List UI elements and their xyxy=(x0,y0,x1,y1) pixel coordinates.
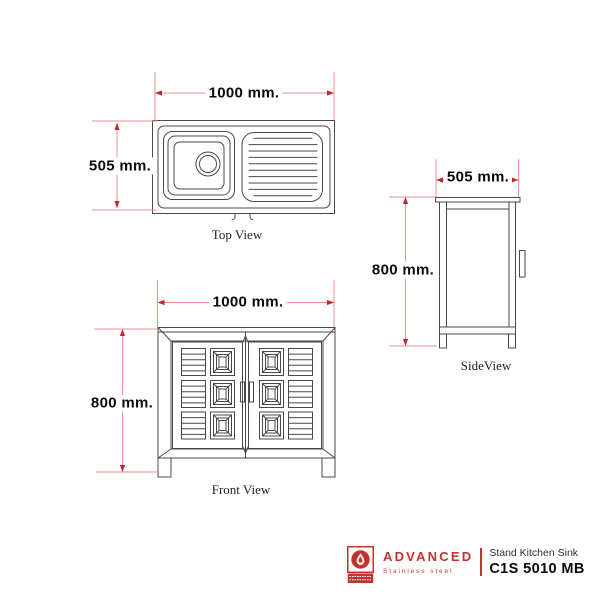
cabinet-leg xyxy=(158,458,171,477)
top-view-drawing xyxy=(153,121,335,220)
line-art-layer xyxy=(0,0,600,600)
side-view-label: SideView xyxy=(461,358,512,374)
dimension-arrowheads xyxy=(114,90,518,472)
side-view-width-dimension: 505 mm. xyxy=(444,169,512,186)
brand-name: ADVANCED xyxy=(383,549,473,564)
technical-drawing-sheet: 1000 mm. 505 mm. 1000 mm. 800 mm. 505 mm… xyxy=(0,0,600,600)
front-view-width-dimension: 1000 mm. xyxy=(210,294,287,311)
front-view-drawing xyxy=(158,328,335,478)
side-view-height-dimension: 800 mm. xyxy=(369,262,437,279)
brand-seal-icon xyxy=(347,546,374,584)
front-view-height-dimension: 800 mm. xyxy=(88,395,156,412)
cabinet-leg xyxy=(322,458,335,477)
top-view-width-dimension: 1000 mm. xyxy=(206,85,283,102)
side-door-handle xyxy=(520,251,526,278)
top-view-height-dimension: 505 mm. xyxy=(86,158,154,175)
side-view-drawing xyxy=(436,198,526,349)
sink-clip xyxy=(250,214,253,220)
brand-subtitle: Stainless steel xyxy=(383,568,473,575)
footer-brand-block: ADVANCED Stainless steel Stand Kitchen S… xyxy=(347,546,585,584)
product-type: Stand Kitchen Sink xyxy=(489,547,584,559)
door-handle xyxy=(250,382,254,402)
front-view-label: Front View xyxy=(212,482,271,498)
cabinet-leg xyxy=(440,334,447,348)
product-model: C1S 5010 MB xyxy=(489,561,584,577)
cabinet-leg xyxy=(509,334,516,348)
footer-divider xyxy=(480,548,482,576)
sink-clip xyxy=(232,214,235,220)
top-view-label: Top View xyxy=(212,227,262,243)
drainboard xyxy=(242,133,323,202)
